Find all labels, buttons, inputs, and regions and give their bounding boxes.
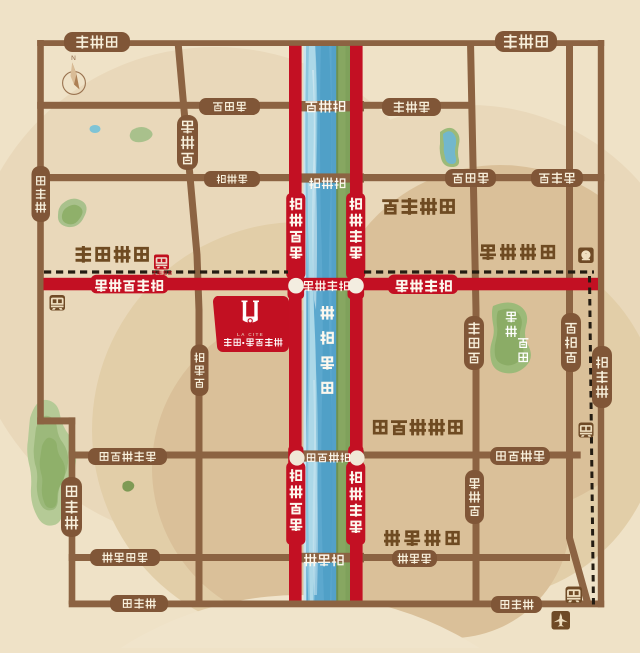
svg-text:LA CITE: LA CITE — [237, 332, 264, 337]
svg-text:N: N — [71, 55, 76, 62]
